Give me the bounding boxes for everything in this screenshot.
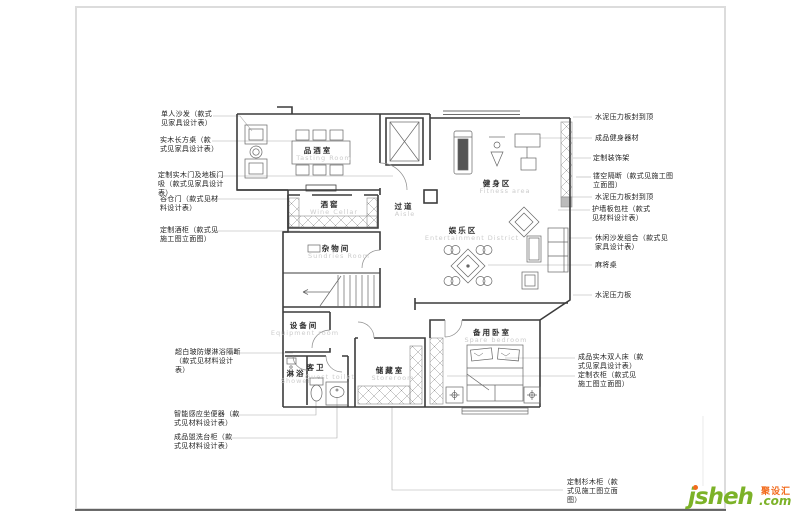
drawing-sheet: 品酒室 Tasting Room 酒窖 Wine Cellar 过道 Aisle… <box>0 0 800 517</box>
callout-shower-partition: 超白玻防爆淋浴隔断 （款式见材料设计 表） <box>175 348 241 375</box>
callout-cement-board-top-2: 水泥压力板封到顶 <box>595 193 653 202</box>
logo-dot-icon <box>693 485 698 490</box>
room-label-storeroom-en: Storeroom <box>372 374 415 382</box>
room-label-equipment-en: Equipment room <box>271 329 339 337</box>
callout-smart-toilet: 智能感应坐便器（款 式见材料设计表） <box>174 410 240 428</box>
callout-washstand: 成品盥洗台柜（款 式见材料设计表） <box>174 433 232 451</box>
callout-cement-board-top-1: 水泥压力板封到顶 <box>595 113 653 122</box>
room-label-wine-cellar-en: Wine Cellar <box>310 208 358 216</box>
callout-hollow-partition: 镂空隔断（款式见施工图 立面图） <box>593 172 673 190</box>
callout-mahjong-table: 麻将桌 <box>595 261 617 270</box>
room-label-aisle-en: Aisle <box>395 210 415 218</box>
room-label-guest-toilet: 客卫 <box>307 362 326 373</box>
callout-barn-door: 谷仓门（款式见材 料设计表） <box>160 195 218 213</box>
callout-fitness-equipment: 成品健身器材 <box>595 134 639 143</box>
floorplan-linework <box>0 0 800 517</box>
room-label-fitness-en: Fitness area <box>479 187 530 195</box>
callout-cement-board: 水泥压力板 <box>595 291 632 300</box>
room-label-tasting-en: Tasting Room <box>296 154 351 162</box>
room-label-guest-toilet-en: Guest toilet <box>305 373 355 381</box>
jsheh-watermark-logo: jsheh 聚设汇 .com <box>688 482 800 516</box>
callout-single-sofa: 单人沙发（款式 见家具设计表） <box>161 110 212 128</box>
callout-leisure-sofa: 休闲沙发组合（款式见 家具设计表） <box>595 234 668 252</box>
callout-fir-cabinet: 定制杉木柜（款 式见施工图立面 图） <box>567 478 618 505</box>
room-label-sundries-en: Sundries Room <box>308 252 370 260</box>
callout-wood-table: 实木长方桌（款 式见家具设计表） <box>160 136 218 154</box>
logo-domain-suffix: .com <box>759 494 791 508</box>
callout-column-wrap: 护墙板包柱（款式 见材料设计表） <box>592 205 650 223</box>
callout-wood-door: 定制实木门及地板门 吸（款式见家具设计 表） <box>158 171 224 198</box>
room-label-entertainment-en: Entertainment District <box>425 234 519 242</box>
room-label-spare-bedroom-en: Spare bedroom <box>465 336 528 344</box>
callout-decor-shelf: 定制装饰架 <box>593 154 630 163</box>
callout-double-bed: 成品实木双人床（款 式见家具设计表） <box>578 353 644 371</box>
callout-wardrobe: 定制衣柜（款式见 施工图立面图） <box>578 371 636 389</box>
callout-wine-cabinet: 定制酒柜（款式见 施工图立面图） <box>160 226 218 244</box>
